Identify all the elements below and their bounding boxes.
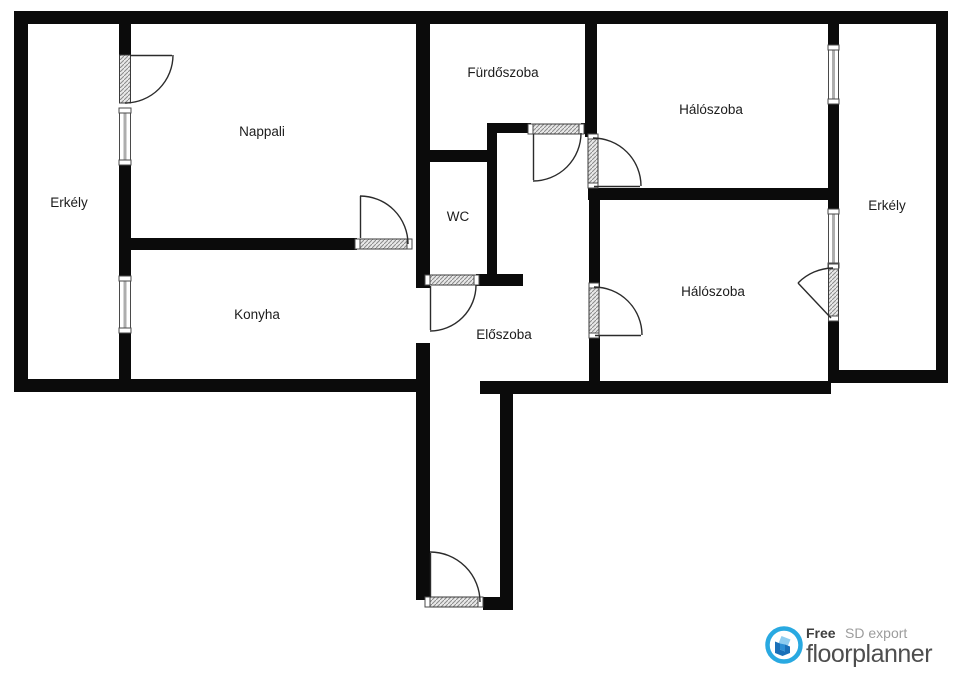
window-nappali-erkely [119,108,131,165]
wall-nappali-konyha-divider [131,238,357,250]
room-label-eloszoba: Előszoba [476,327,532,342]
door-leaf [428,597,480,607]
door-nappali-konyha [355,196,412,249]
room-label-nappali: Nappali [239,124,285,139]
window-konyha-erkely [119,276,131,333]
door-leaf [359,239,408,249]
floorplan-canvas: Erkély Nappali Fürdőszoba Hálószoba Erké… [0,0,960,679]
wall-haloszoba-top-left [585,11,597,137]
wall-top-outer [14,11,948,24]
wall-furdoszoba-bottom-left [487,123,531,133]
door-swing-arc [593,138,641,186]
door-swing-arc [430,552,480,602]
wall-wc-right [487,123,497,280]
window-haloszoba-top-erkely [828,45,839,104]
wall-erkely-right-divider-b [828,101,839,213]
wall-corridor-right [500,392,513,610]
wall-erkely-left-divider-b [119,162,131,280]
wall-corridor-left [416,343,430,600]
logo-brand-name: floorplanner [806,640,932,668]
door-leaf [531,124,581,134]
door-haloszoba-top [588,134,641,188]
door-leaf [829,268,839,318]
wall-corridor-door-block [483,597,513,610]
wall-erkely-right-divider-c [828,320,839,383]
wall-haloszoba-bottom-left-a [589,200,600,287]
wall-erkely-left-divider-c [119,330,131,392]
room-label-erkely-left: Erkély [50,195,88,210]
wall-furdoszoba-wc-divider [430,150,490,162]
door-leaf [589,287,599,335]
door-swing-arc [594,287,642,335]
door-erkely-right [798,264,839,321]
wall-right-outer [936,11,948,383]
door-swing-arc [360,196,408,244]
room-label-furdoszoba: Fürdőszoba [467,65,539,80]
door-swing-arc [125,55,173,103]
door-entry [425,552,483,607]
wall-bottom-left [14,379,418,392]
wall-erkely-right-divider-a [828,11,839,48]
door-swing-arc [798,268,833,283]
window-haloszoba-bottom-erkely [828,209,839,268]
room-label-erkely-right: Erkély [868,198,906,213]
door-erkely-left [120,55,174,103]
wall-erkely-left-divider-a [119,11,131,55]
door-leaf [120,55,131,103]
wall-wc-left [416,11,430,288]
walls [14,11,948,610]
wall-haloszoba-divider [588,188,831,200]
floorplanner-logo: Free SD export floorplanner [768,625,933,668]
door-swing-arc [430,285,476,331]
floorplan-drawing: Erkély Nappali Fürdőszoba Hálószoba Erké… [0,0,960,679]
room-labels: Erkély Nappali Fürdőszoba Hálószoba Erké… [50,65,906,342]
wall-haloszoba-bottom-left-b [589,335,600,383]
room-label-wc: WC [447,209,470,224]
door-open-leaf [798,283,831,318]
wall-bottom-balcony-right [831,370,948,383]
door-wc [425,275,479,331]
room-label-haloszoba-top: Hálószoba [679,102,743,117]
room-label-konyha: Konyha [234,307,280,322]
wall-wc-bottom [476,274,523,286]
wall-bottom-middle [480,381,831,394]
door-leaf [428,275,476,285]
room-label-haloszoba-bottom: Hálószoba [681,284,745,299]
door-haloszoba-bottom [589,283,642,338]
door-leaf [588,137,598,186]
wall-left-outer [14,11,28,392]
door-swing-arc [533,133,581,181]
door-furdoszoba [528,124,584,181]
